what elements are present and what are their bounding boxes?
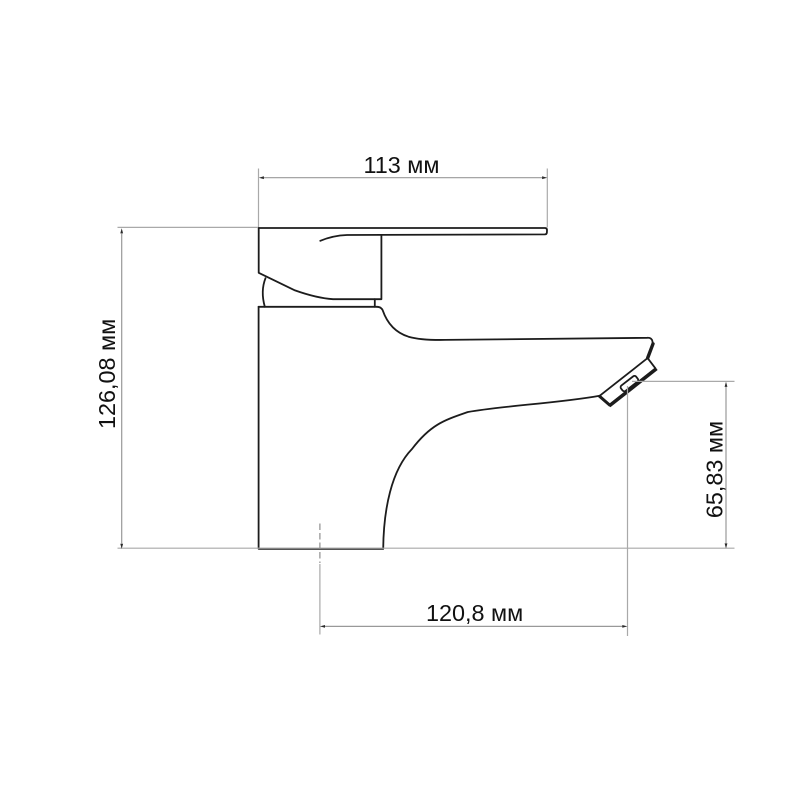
svg-text:120,8 мм: 120,8 мм — [426, 600, 523, 626]
svg-text:126,08 мм: 126,08 мм — [94, 319, 120, 429]
svg-text:113 мм: 113 мм — [364, 152, 440, 178]
svg-text:65,83 мм: 65,83 мм — [701, 421, 727, 518]
